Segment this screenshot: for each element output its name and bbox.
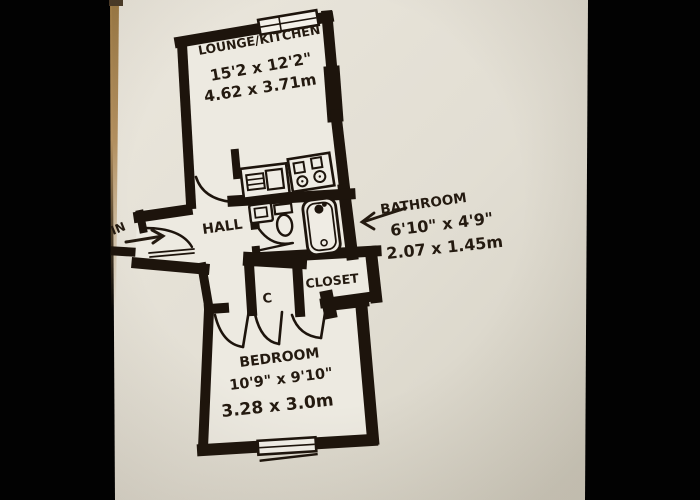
floorplan-svg: LOUNGE/KITCHEN 15'2 x 12'2" 4.62 x 3.71m… <box>0 0 700 500</box>
floorplan-photo: LOUNGE/KITCHEN 15'2 x 12'2" 4.62 x 3.71m… <box>0 0 700 500</box>
photo-vignette <box>112 0 588 500</box>
